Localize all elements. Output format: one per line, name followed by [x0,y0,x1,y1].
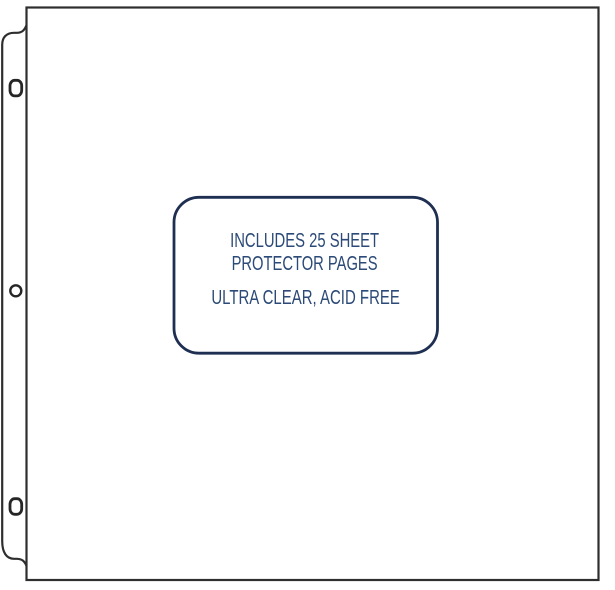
svg-text:ULTRA CLEAR, ACID FREE: ULTRA CLEAR, ACID FREE [211,287,400,309]
svg-text:PROTECTOR PAGES: PROTECTOR PAGES [232,253,378,275]
svg-text:INCLUDES 25 SHEET: INCLUDES 25 SHEET [230,230,379,252]
